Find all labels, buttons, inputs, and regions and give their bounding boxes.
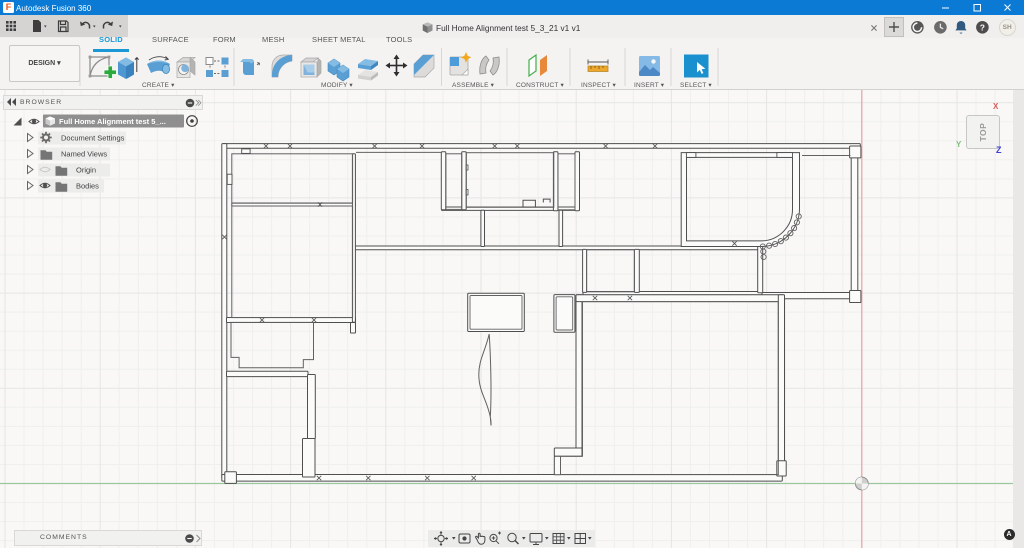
svg-text:Full Home Alignment test 5_...: Full Home Alignment test 5_... <box>59 117 166 126</box>
svg-text:?: ? <box>980 22 985 32</box>
svg-text:Named Views: Named Views <box>61 150 107 159</box>
svg-text:Origin: Origin <box>76 166 96 175</box>
svg-text:Document Settings: Document Settings <box>61 134 125 143</box>
svg-text:Bodies: Bodies <box>76 182 99 191</box>
